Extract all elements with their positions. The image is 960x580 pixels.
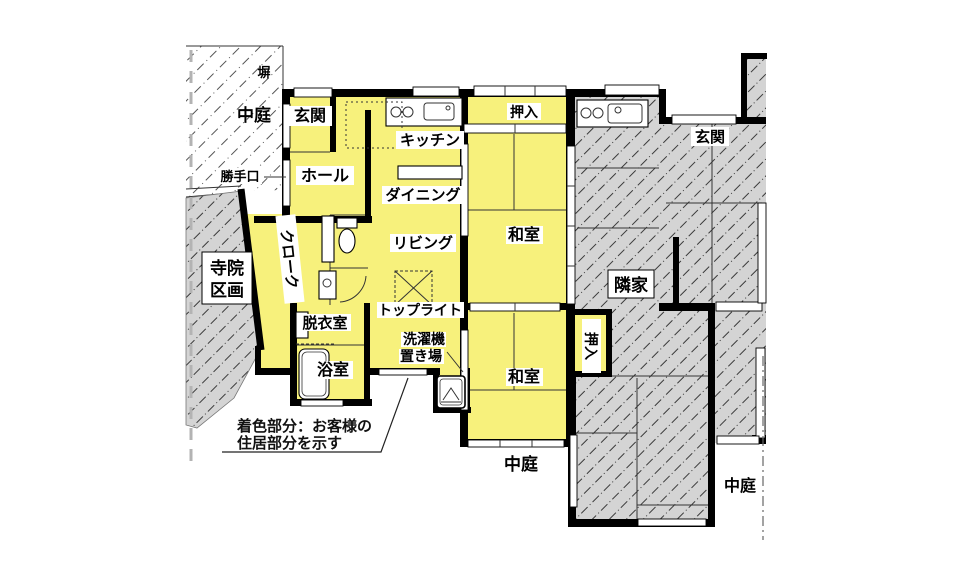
washer-area-label-1: 洗濯機: [403, 331, 445, 347]
closet-side-label: 押入: [582, 319, 601, 373]
toilet-icon: [337, 218, 357, 253]
fence-label: 塀: [257, 65, 270, 80]
tatami-upper-label: 和室: [508, 225, 540, 244]
svg-text:押入: 押入: [583, 332, 599, 360]
dining-counter: [398, 166, 462, 179]
main-entrance-label: 玄関: [294, 106, 326, 125]
courtyard-bottom-label: 中庭: [504, 454, 538, 474]
note-line-1: 着色部分：お客様の: [236, 417, 372, 435]
bathroom-label: 浴室: [317, 360, 349, 379]
floor-plan: 塀 中庭 玄関 ホール キッチン ダイニング リビング 押入 和室 和室 押入 …: [0, 0, 960, 580]
courtyard-bottom-right-label: 中庭: [724, 476, 756, 495]
dining-label: ダイニング: [385, 186, 460, 204]
kitchen-label: キッチン: [400, 132, 460, 149]
hall-label: ホール: [301, 167, 349, 185]
living-label: リビング: [393, 234, 453, 252]
note-line-2: 住居部分を示す: [237, 434, 342, 452]
neighbor-kitchen-counter: [577, 100, 648, 127]
back-door-label: 勝手口: [220, 169, 259, 184]
skylight-label: トップライト: [378, 302, 462, 318]
vanity-icon: [322, 216, 334, 262]
neighbor-entrance-label: 玄関: [695, 128, 725, 146]
washbasin-icon: [319, 271, 336, 299]
neighbor-house-label: 隣家: [614, 275, 648, 295]
tatami-lower-label: 和室: [508, 367, 540, 386]
dressing-room-label: 脱衣室: [302, 314, 347, 332]
courtyard-top-left-label: 中庭: [237, 105, 271, 125]
closet-top-label: 押入: [510, 104, 538, 120]
floor-plan-canvas: 塀 中庭 玄関 ホール キッチン ダイニング リビング 押入 和室 和室 押入 …: [0, 0, 960, 580]
temple-label-2: 区画: [210, 281, 244, 300]
washing-machine-icon: [437, 376, 465, 408]
washer-area-label-2: 置き場: [400, 348, 442, 364]
neighbor-porch-area: [744, 55, 766, 120]
temple-label-1: 寺院: [210, 258, 244, 278]
